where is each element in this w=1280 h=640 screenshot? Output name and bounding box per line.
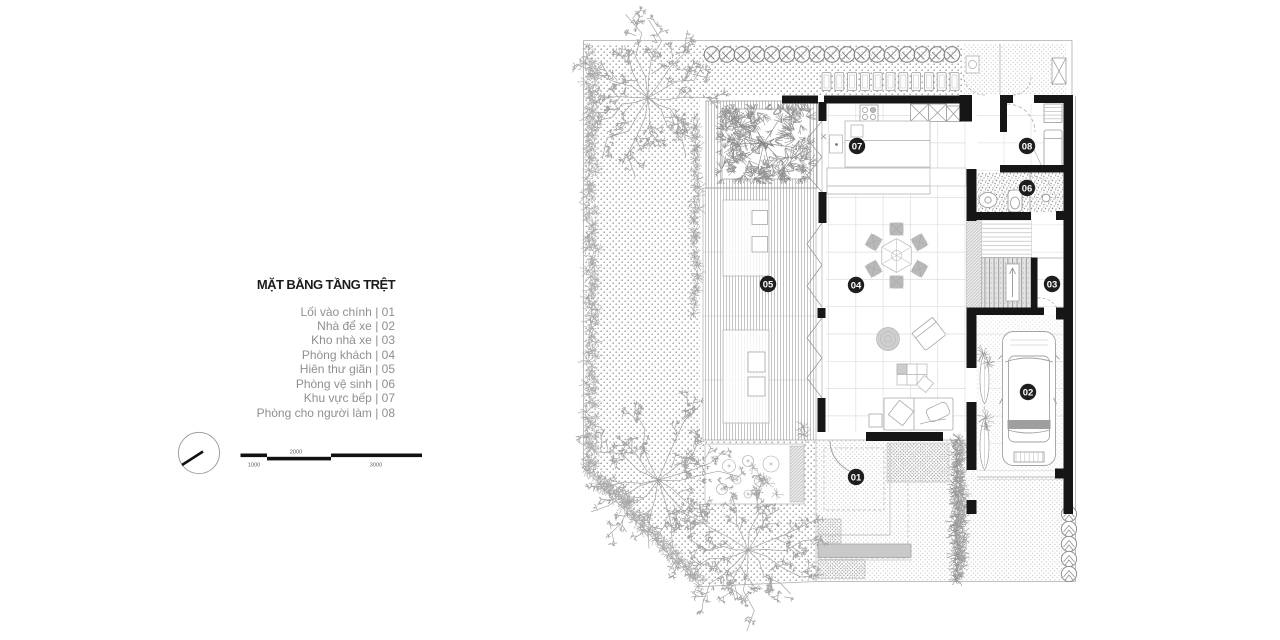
svg-text:01: 01 <box>851 472 862 483</box>
svg-text:05: 05 <box>763 279 774 290</box>
svg-text:04: 04 <box>851 280 862 291</box>
svg-text:06: 06 <box>1022 183 1033 194</box>
svg-text:3000: 3000 <box>370 463 382 469</box>
svg-text:07: 07 <box>852 141 863 152</box>
svg-text:02: 02 <box>1023 387 1034 398</box>
svg-text:03: 03 <box>1047 279 1058 290</box>
svg-text:08: 08 <box>1022 141 1033 152</box>
svg-text:1000: 1000 <box>248 463 260 469</box>
svg-text:2000: 2000 <box>290 450 302 456</box>
